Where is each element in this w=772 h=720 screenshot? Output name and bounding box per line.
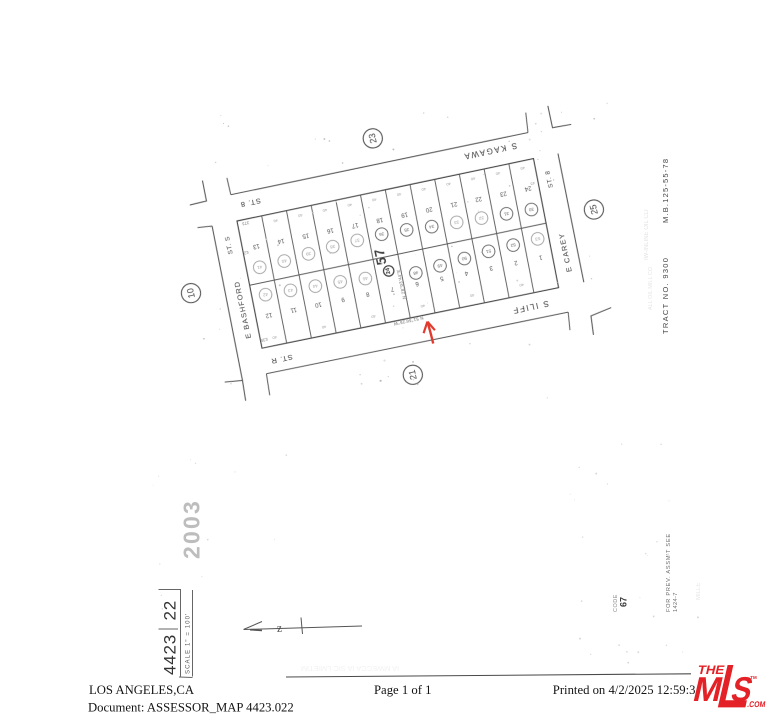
svg-text:Page 1 of 1: Page 1 of 1 — [374, 683, 431, 697]
svg-text:ALL OIL MILL CO: ALL OIL MILL CO — [648, 266, 654, 310]
svg-text:67: 67 — [619, 597, 629, 607]
svg-text:TRACT NO. 9300: TRACT NO. 9300 — [661, 257, 670, 334]
svg-text:4423: 4423 — [161, 634, 180, 675]
svg-text:2003: 2003 — [179, 499, 205, 559]
svg-text:TM: TM — [750, 675, 757, 680]
svg-text:21: 21 — [407, 369, 419, 381]
svg-text:IW-INLINE OIL CLI: IW-INLINE OIL CLI — [644, 209, 650, 260]
svg-text:SCALE 1" = 100': SCALE 1" = 100' — [186, 613, 192, 674]
svg-text:Printed on 4/2/2025 12:59:3: Printed on 4/2/2025 12:59:3 — [553, 683, 696, 697]
svg-text:.COM: .COM — [747, 700, 766, 709]
svg-text:LOS ANGELES,CA: LOS ANGELES,CA — [89, 683, 195, 697]
svg-text:IA MWECCA IA SIC LMIETIM: IA MWECCA IA SIC LMIETIM — [301, 664, 399, 673]
svg-text:Document: ASSESSOR_MAP 4423.02: Document: ASSESSOR_MAP 4423.022 — [88, 701, 294, 715]
svg-text:M.B.125-55-78: M.B.125-55-78 — [661, 158, 670, 223]
svg-text:FOR PREV. ASSM'T SEE: FOR PREV. ASSM'T SEE — [666, 533, 672, 612]
svg-text:z: z — [276, 621, 282, 635]
svg-text:10: 10 — [185, 287, 197, 299]
svg-text:MILLE: MILLE — [696, 583, 702, 600]
svg-text:22: 22 — [161, 600, 180, 621]
svg-text:25: 25 — [588, 204, 600, 216]
svg-text:1424-7: 1424-7 — [673, 592, 679, 612]
svg-text:23: 23 — [367, 132, 379, 144]
